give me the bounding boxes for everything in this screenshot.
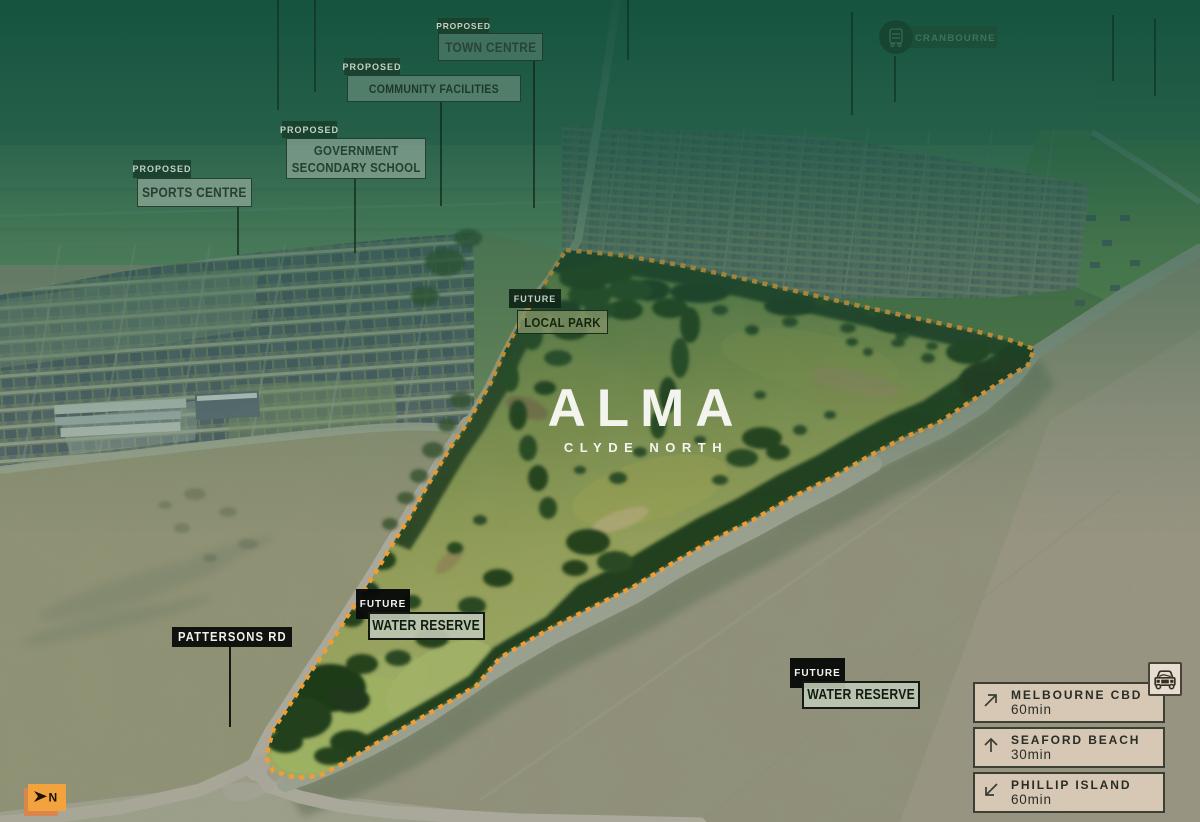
svg-text:N: N	[49, 791, 58, 804]
svg-text:CRANBOURNE: CRANBOURNE	[915, 33, 996, 44]
